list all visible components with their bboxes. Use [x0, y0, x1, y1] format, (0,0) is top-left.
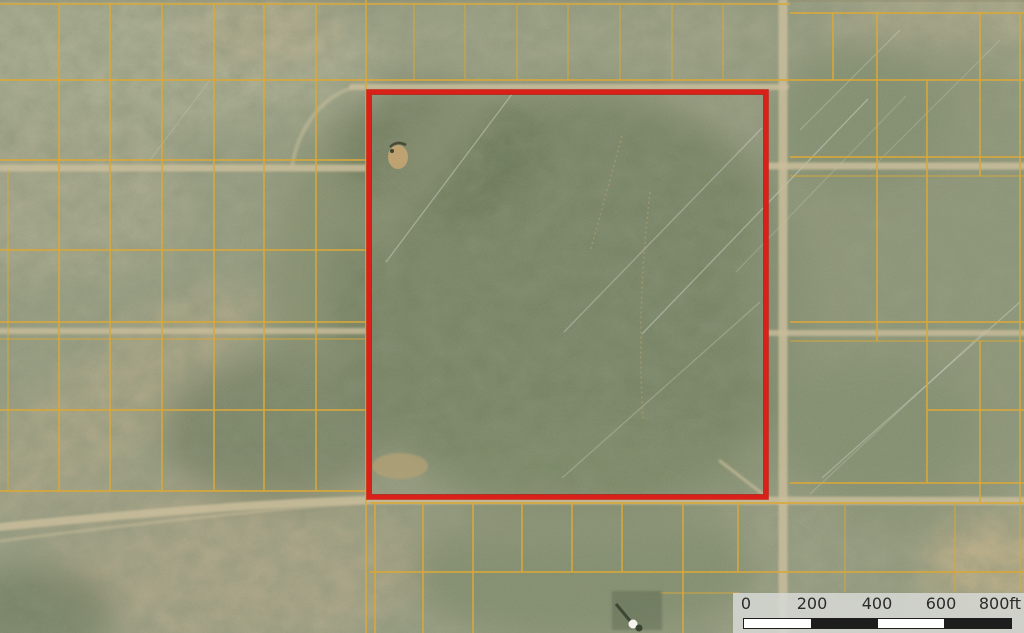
scale-bar-segments: [743, 618, 1012, 629]
scale-bar-segment: [944, 619, 1011, 628]
scale-tick-label: 600: [926, 595, 957, 613]
scale-tick-label: 800ft: [979, 595, 1021, 613]
scale-tick-label: 400: [862, 595, 893, 613]
map-scale-bar: 0 200 400 600 800ft: [733, 593, 1024, 633]
bare-soil-patch: [372, 453, 428, 479]
satellite-imagery: [0, 0, 1024, 633]
scale-bar-segment: [744, 619, 811, 628]
scale-bar-segment: [878, 619, 945, 628]
scale-bar-segment: [811, 619, 878, 628]
scale-tick-label: 200: [797, 595, 828, 613]
aerial-map: 0 200 400 600 800ft: [0, 0, 1024, 633]
scale-tick-label: 0: [741, 595, 751, 613]
windmill-structure: [612, 591, 662, 632]
